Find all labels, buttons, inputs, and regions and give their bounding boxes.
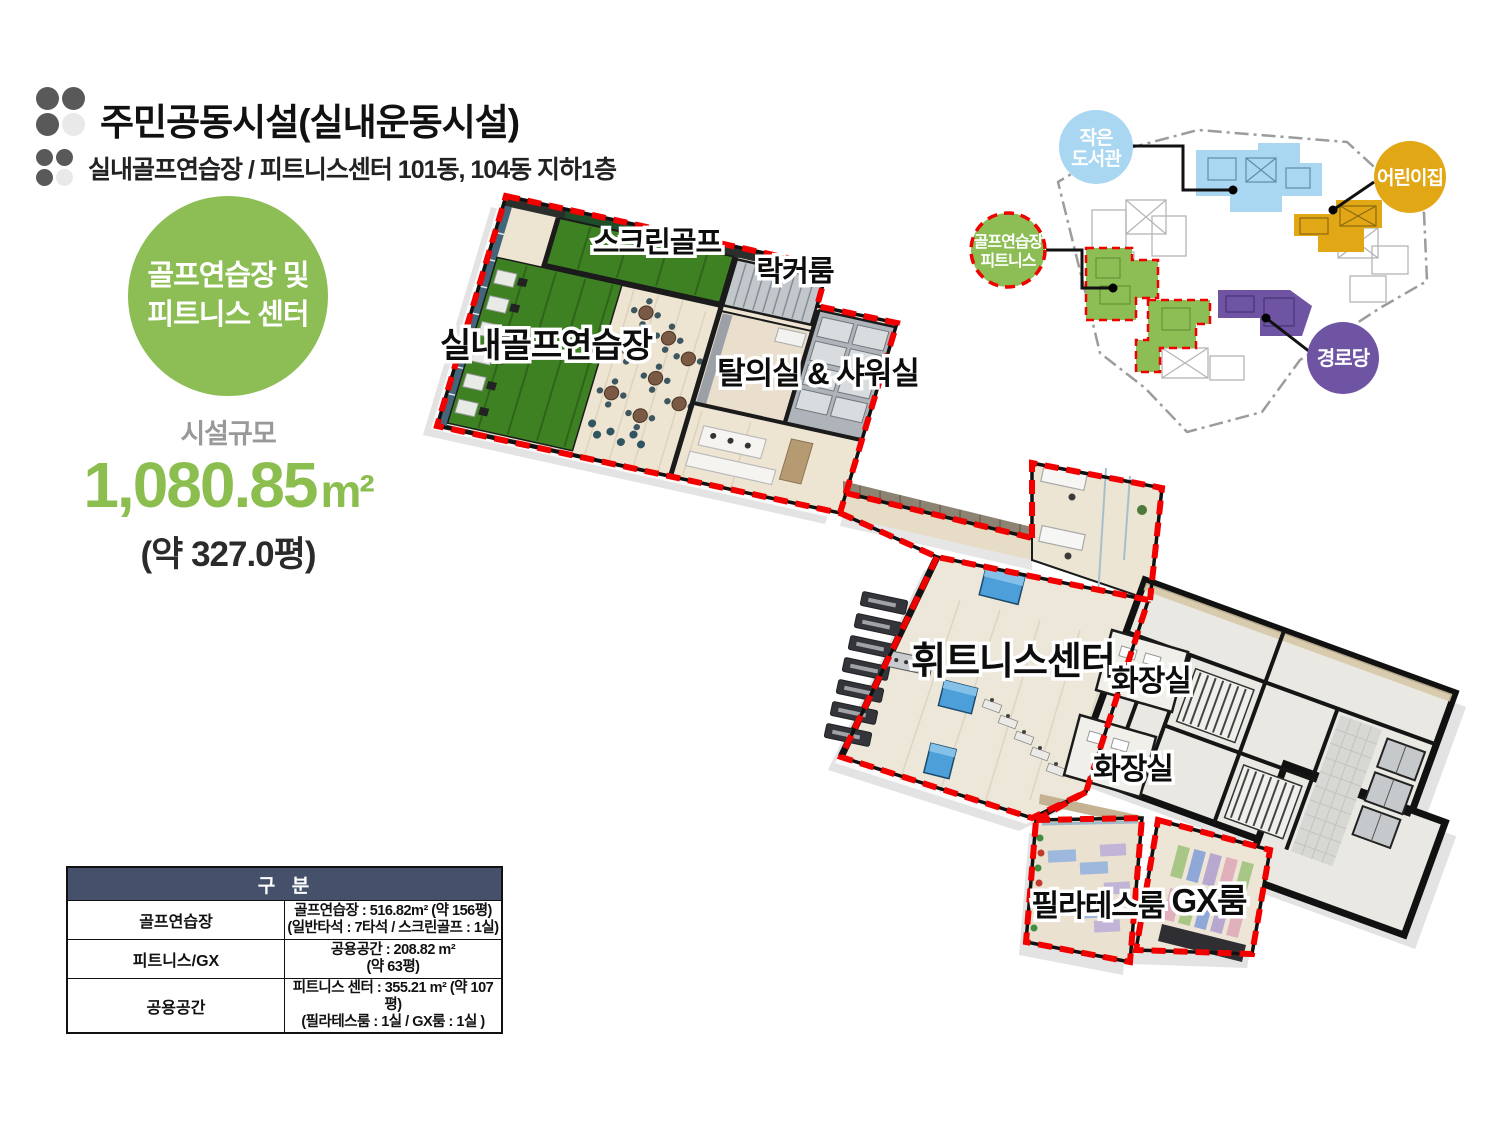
corridor: [840, 481, 1032, 560]
row-category: 피트니스/GX: [67, 940, 285, 979]
row-detail-line1: 골프연습장 : 516.82m² (약 156평): [287, 903, 499, 920]
facility-badge: 골프연습장 및 피트니스 센터: [128, 196, 328, 396]
site-minimap: 작은 도서관 어린이집 골프연습장 피트니스 경로당: [971, 110, 1446, 432]
label-locker-room: 락커룸: [756, 255, 833, 288]
page-subtitle: 실내골프연습장 / 피트니스센터 101동, 104동 지하1층: [88, 150, 616, 186]
golf-circle-label2: 피트니스: [981, 252, 1037, 270]
label-pilates: 필라테스룸: [1032, 890, 1165, 923]
label-restroom-2: 화장실: [1093, 753, 1173, 786]
library-circle-label2: 도서관: [1071, 148, 1122, 170]
slide: 스크린골프 락커룸 실내골프연습장 탈의실 & 샤워실 휘트니스센터 화장실 화…: [0, 0, 1500, 1125]
table-row: 골프연습장 골프연습장 : 516.82m² (약 156평) (일반타석 : …: [67, 901, 502, 940]
golf-circle-label1: 골프연습장: [974, 233, 1044, 251]
row-detail: 피트니스 센터 : 355.21 m² (약 107평) (필라테스룸 : 1실…: [285, 979, 503, 1034]
page-title: 주민공동시설(실내운동시설): [100, 92, 519, 146]
scale-label: 시설규모: [68, 412, 388, 451]
table-row: 공용공간 피트니스 센터 : 355.21 m² (약 107평) (필라테스룸…: [67, 979, 502, 1034]
library-circle-label1: 작은: [1080, 127, 1113, 149]
badge-line2: 피트니스 센터: [147, 296, 308, 335]
label-indoor-golf: 실내골프연습장: [440, 327, 653, 365]
table-header: 구 분: [67, 867, 502, 901]
label-screen-golf: 스크린골프: [593, 226, 722, 259]
area-value: 1,080.85: [83, 449, 316, 521]
table-row: 피트니스/GX 공용공간 : 208.82 m² (약 63평): [67, 940, 502, 979]
facility-area: 1,080.85m²: [28, 448, 428, 522]
minimap-golf-fitness: [1046, 248, 1210, 372]
badge-line1: 골프연습장 및: [147, 257, 308, 296]
label-fitness-center: 휘트니스센터: [911, 641, 1115, 683]
bullet-grid-icon: [36, 149, 73, 186]
area-unit: m²: [320, 465, 372, 517]
daycare-circle-label: 어린이집: [1377, 167, 1443, 189]
senior-circle-label: 경로당: [1317, 347, 1371, 370]
bullet-grid-icon: [36, 87, 85, 136]
row-category: 골프연습장: [67, 901, 285, 940]
row-category: 공용공간: [67, 979, 285, 1034]
row-detail: 골프연습장 : 516.82m² (약 156평) (일반타석 : 7타석 / …: [285, 901, 503, 940]
minimap-senior: [1218, 290, 1312, 352]
label-restroom-1: 화장실: [1111, 665, 1191, 698]
minimap-library: [1131, 143, 1322, 212]
row-detail-line1: 피트니스 센터 : 355.21 m² (약 107평): [287, 980, 499, 1014]
row-detail-line1: 공용공간 : 208.82 m²: [287, 942, 499, 959]
area-pyeong: (약 327.0평): [28, 526, 428, 577]
row-detail-line2: (필라테스룸 : 1실 / GX룸 : 1실 ): [287, 1014, 499, 1031]
row-detail-line2: (일반타석 : 7타석 / 스크린골프 : 1실): [287, 920, 499, 937]
label-gx: GX룸: [1171, 882, 1247, 919]
label-dressing-shower: 탈의실 & 샤워실: [717, 356, 919, 391]
row-detail-line2: (약 63평): [287, 959, 499, 976]
facility-summary-table: 구 분 골프연습장 골프연습장 : 516.82m² (약 156평) (일반타…: [66, 866, 503, 1034]
row-detail: 공용공간 : 208.82 m² (약 63평): [285, 940, 503, 979]
